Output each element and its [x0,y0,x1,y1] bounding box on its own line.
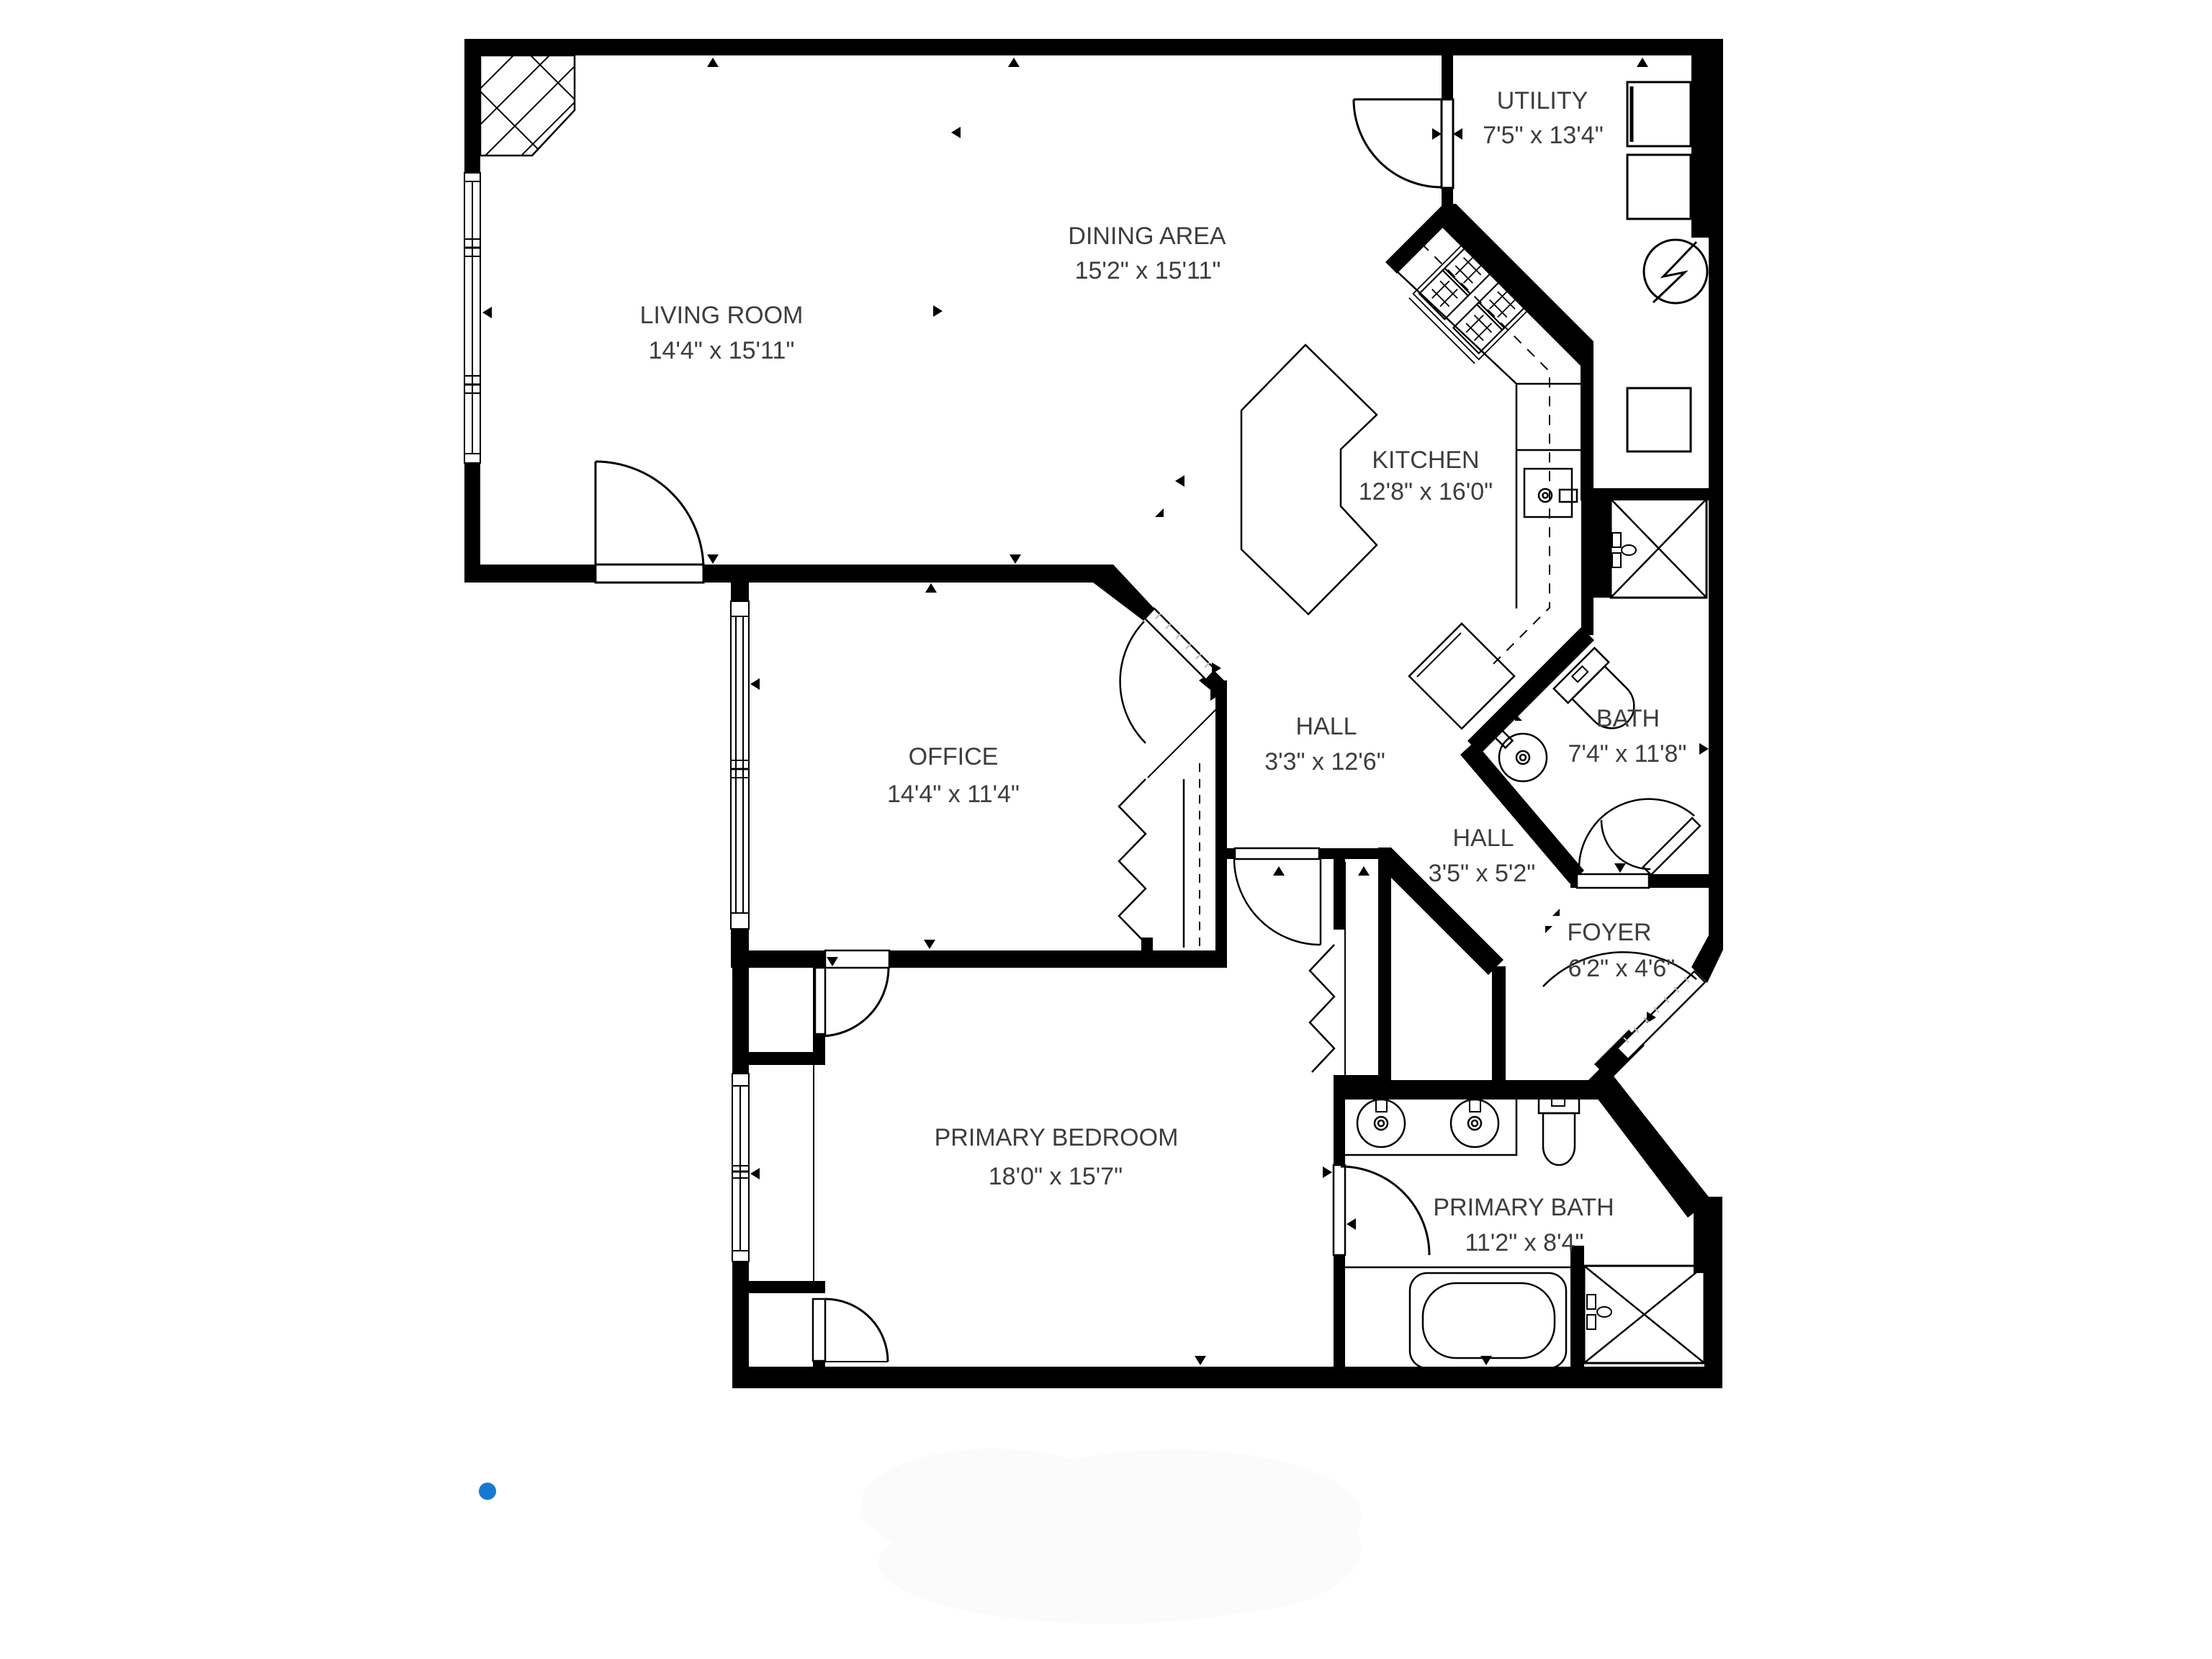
svg-text:14'4" x 11'4": 14'4" x 11'4" [887,781,1020,808]
svg-text:14'4" x 15'11": 14'4" x 15'11" [649,337,795,364]
svg-text:3'5" x 5'2": 3'5" x 5'2" [1429,860,1536,887]
svg-text:FOYER: FOYER [1567,919,1651,946]
svg-text:3'3" x 12'6": 3'3" x 12'6" [1264,748,1385,775]
svg-text:6'2" x 4'6": 6'2" x 4'6" [1568,955,1676,982]
svg-text:12'8" x 16'0": 12'8" x 16'0" [1359,478,1493,505]
svg-text:7'5" x 13'4": 7'5" x 13'4" [1483,122,1604,149]
svg-text:KITCHEN: KITCHEN [1372,446,1479,474]
svg-text:7'4" x 11'8": 7'4" x 11'8" [1568,740,1686,768]
svg-text:BATH: BATH [1596,705,1660,732]
svg-text:DINING AREA: DINING AREA [1068,222,1226,250]
svg-text:PRIMARY BATH: PRIMARY BATH [1433,1194,1614,1221]
svg-text:OFFICE: OFFICE [909,743,999,770]
svg-text:LIVING ROOM: LIVING ROOM [640,302,804,329]
svg-text:18'0" x 15'7": 18'0" x 15'7" [989,1163,1123,1190]
svg-text:11'2" x 8'4": 11'2" x 8'4" [1465,1229,1583,1256]
svg-text:HALL: HALL [1452,824,1514,852]
svg-text:15'2" x 15'11": 15'2" x 15'11" [1075,257,1221,284]
svg-text:PRIMARY BEDROOM: PRIMARY BEDROOM [935,1124,1179,1151]
svg-text:HALL: HALL [1295,713,1357,740]
svg-text:UTILITY: UTILITY [1497,87,1588,114]
